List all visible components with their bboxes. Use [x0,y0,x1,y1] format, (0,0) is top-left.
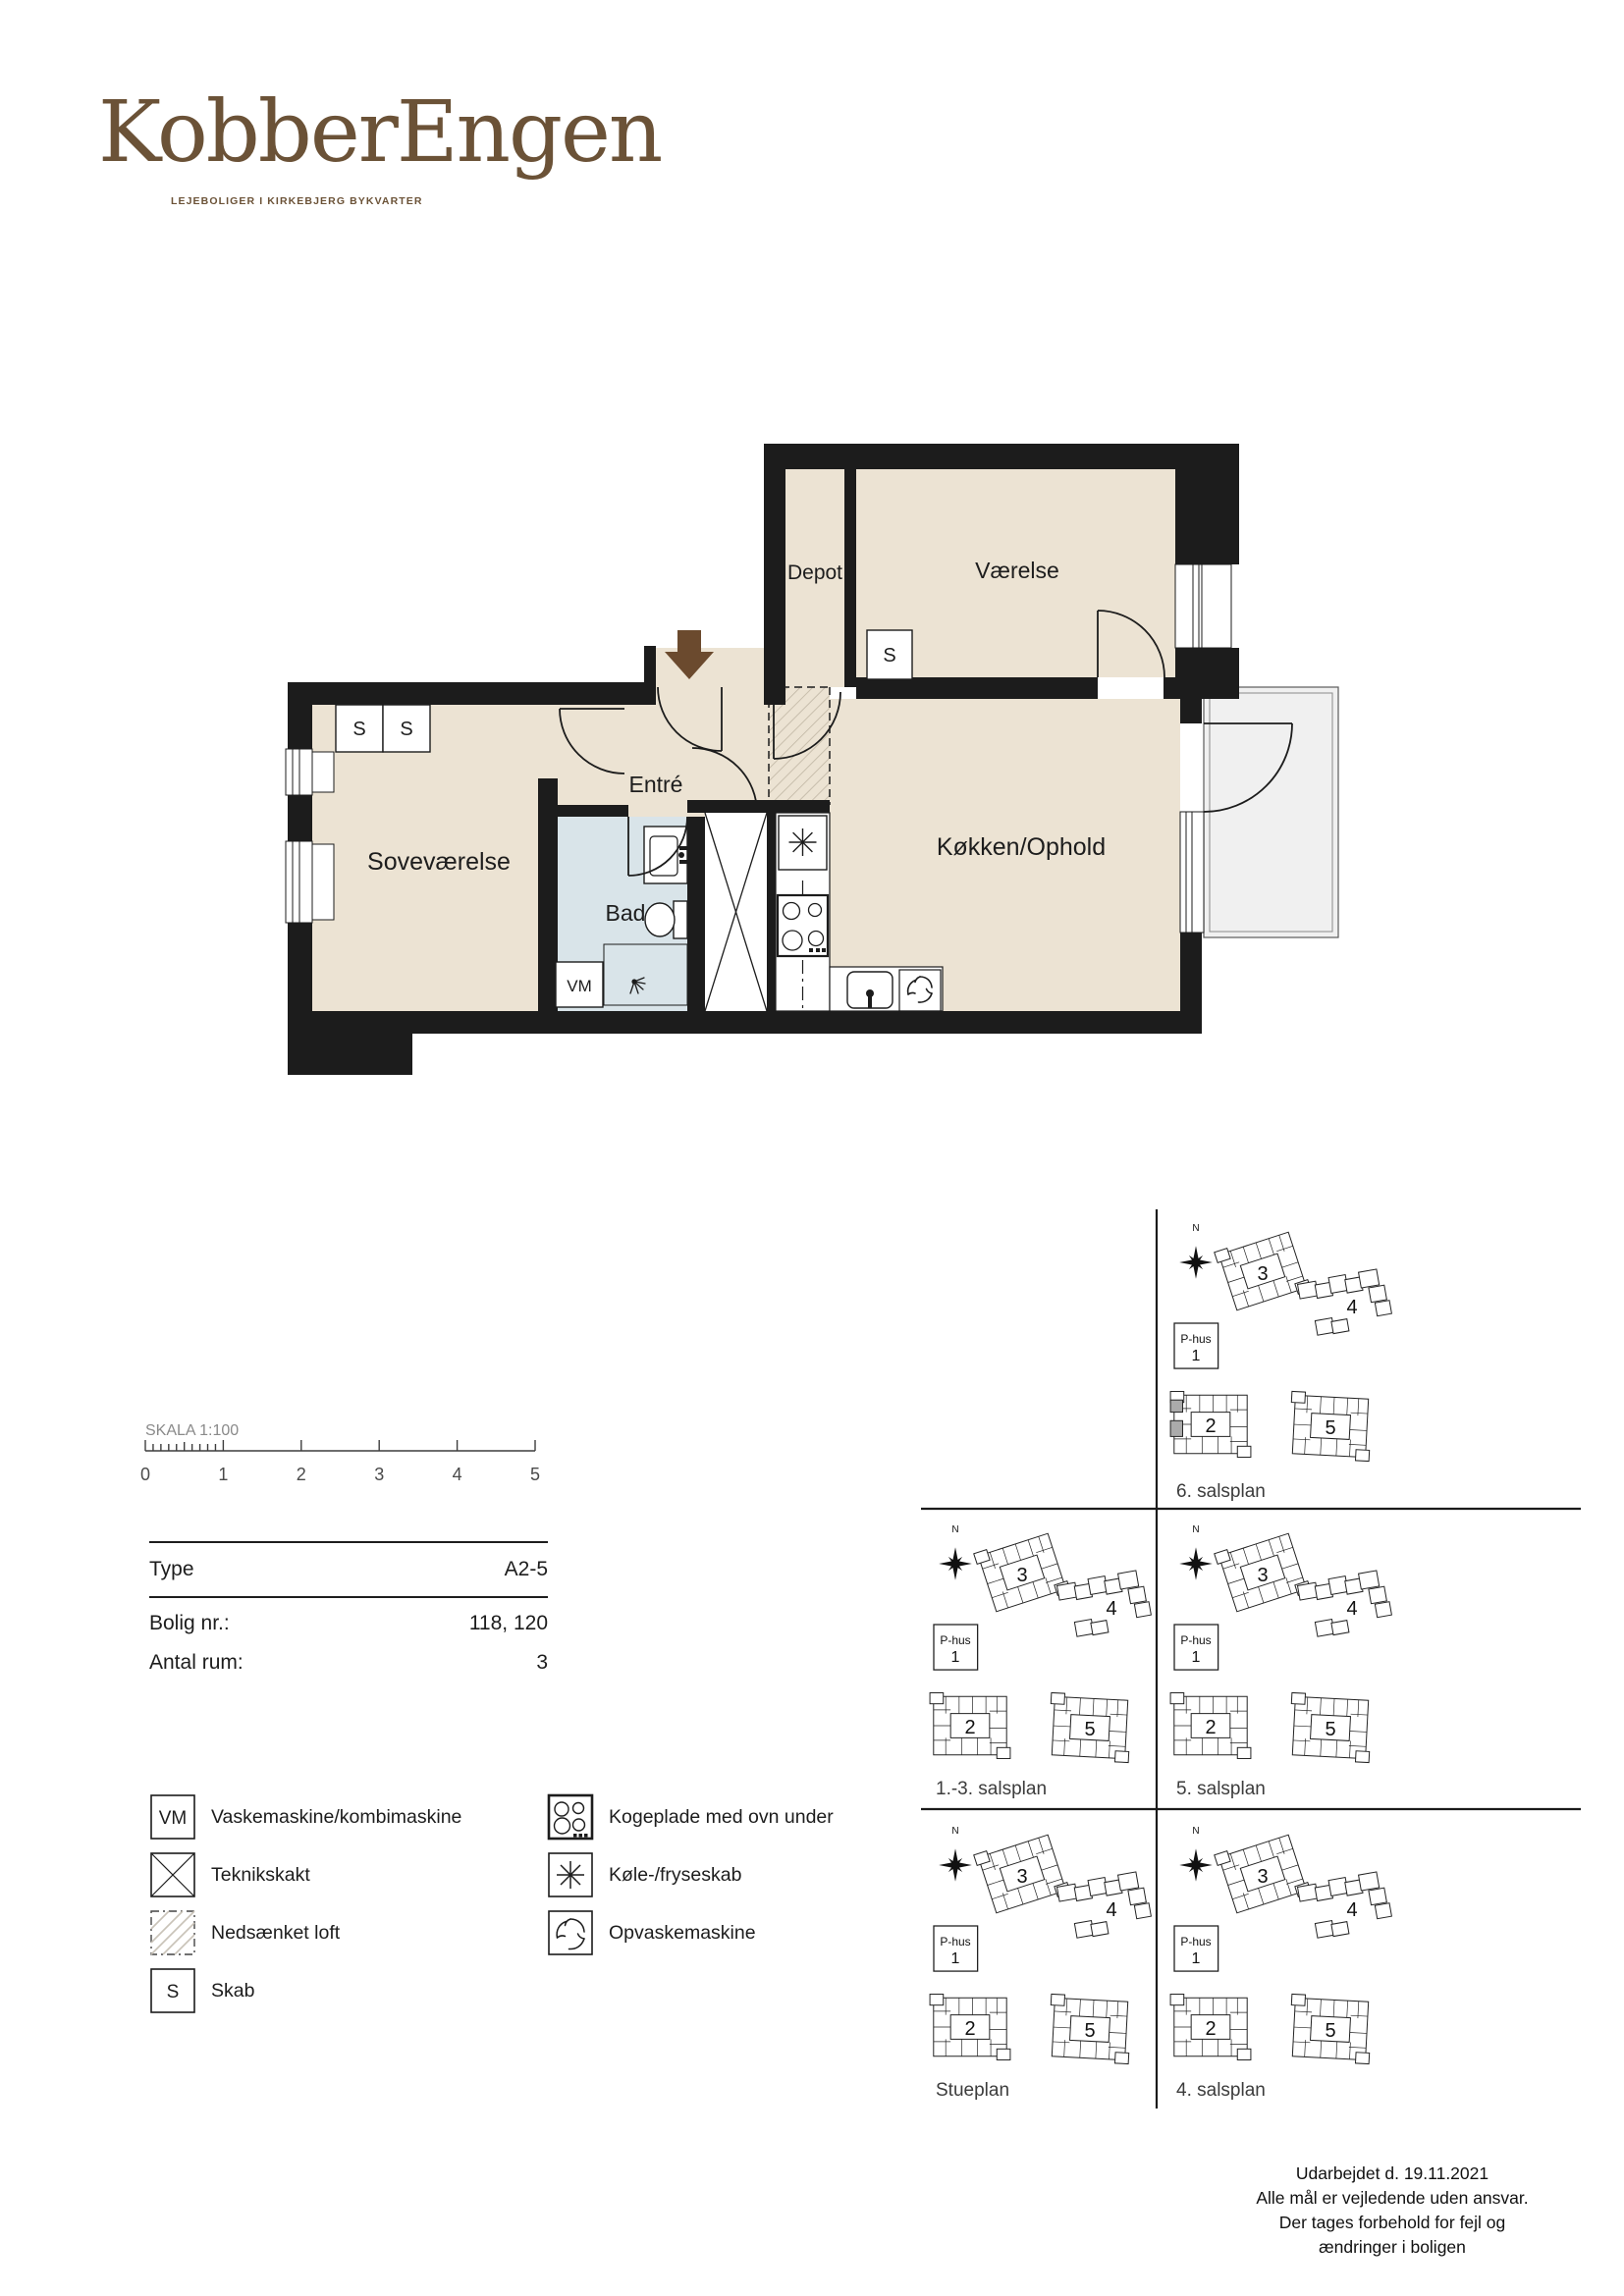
legend-item: Køle-/fryseskab [547,1851,834,1898]
p-hus-label: P-hus [940,1633,970,1647]
building-2-label: 2 [1205,1717,1216,1738]
building-4-label: 4 [1346,1598,1357,1620]
room-label-entre: Entré [629,772,683,797]
p-hus-label: P-hus [1180,1935,1211,1949]
siteplan-cell: N34P-hus1255. salsplan [1170,1524,1393,1799]
building-5-label: 5 [1084,2020,1095,2042]
floorplan-drawing: VM S S S [275,412,1355,1099]
legend-left-column: VMVaskemaskine/kombimaskineTeknikskaktNe… [149,1793,461,2025]
room-label-bad: Bad [606,900,646,926]
hob-icon [778,895,828,956]
footer-line: Udarbejdet d. 19.11.2021 [1208,2162,1577,2186]
siteplan-name: 4. salsplan [1176,2080,1266,2101]
building-1-label: 1 [951,1950,960,1967]
building-2-label: 2 [964,2018,975,2040]
legend-label: Teknikskakt [211,1864,310,1887]
building-2-label: 2 [1205,2018,1216,2040]
footer-line: Alle mål er vejledende uden ansvar. [1208,2186,1577,2211]
floorplan-sheet: KobberEngen LEJEBOLIGER I KIRKEBJERG BYK… [0,0,1624,2296]
room-label-depot: Depot [787,561,842,584]
building-4-label: 4 [1106,1598,1116,1620]
info-label: Type [149,1543,194,1596]
bath-sink-icon [644,827,687,883]
legend-item: Kogeplade med ovn under [547,1793,834,1841]
compass-north-label: N [1192,1524,1199,1535]
scale-bar: SKALA 1:100012345 [137,1412,560,1495]
siteplan-cell: N34P-hus1251.-3. salsplan [930,1524,1153,1799]
footer-line: Der tages forbehold for fejl og [1208,2211,1577,2235]
scale-tick-label: 0 [140,1465,150,1484]
compass-north-label: N [951,1524,958,1535]
siteplan-name: 5. salsplan [1176,1779,1266,1799]
scale-tick-label: 5 [530,1465,540,1484]
footer-disclaimer: Udarbejdet d. 19.11.2021Alle mål er vejl… [1208,2162,1577,2260]
siteplan-name: 1.-3. salsplan [936,1779,1047,1799]
legend-item: Nedsænket loft [149,1909,461,1956]
legend-label: Nedsænket loft [211,1922,340,1945]
building-3-label: 3 [1257,1866,1268,1888]
svg-text:S: S [167,1982,180,2002]
svg-text:VM: VM [159,1808,188,1829]
closet-label: S [400,719,412,740]
closet-label: S [352,719,365,740]
shaft-symbol-icon [149,1851,196,1898]
fridge-symbol-icon [547,1851,594,1898]
brand-tagline: LEJEBOLIGER I KIRKEBJERG BYKVARTER [171,195,423,207]
legend-item: SSkab [149,1967,461,2014]
closet-symbol-icon: S [149,1967,196,2014]
washing-machine-box: VM [556,962,603,1007]
legend-item: Opvaskemaskine [547,1909,834,1956]
building-1-label: 1 [1192,1950,1201,1967]
building-3-label: 3 [1016,1565,1027,1586]
building-3-label: 3 [1016,1866,1027,1888]
info-value: A2-5 [505,1543,548,1596]
scale-tick-label: 4 [453,1465,462,1484]
siteplan-cell: N34P-hus125Stueplan [930,1826,1153,2101]
vm-symbol-icon: VM [149,1793,196,1841]
info-label: Antal rum: [149,1643,244,1682]
room-label-vaerelse: Værelse [975,558,1059,583]
siteplan-name: 6. salsplan [1176,1481,1266,1502]
building-4-label: 4 [1346,1297,1357,1318]
building-5-label: 5 [1325,1417,1335,1439]
p-hus-label: P-hus [1180,1633,1211,1647]
legend-label: Kogeplade med ovn under [609,1806,834,1829]
building-1-label: 1 [1192,1649,1201,1666]
room-label-sovevaerelse: Soveværelse [367,848,511,876]
info-value: 3 [536,1643,548,1682]
closet-label: S [883,645,895,667]
building-1-label: 1 [1192,1348,1201,1364]
legend-item: Teknikskakt [149,1851,461,1898]
compass-north-label: N [1192,1826,1199,1837]
legend-label: Vaskemaskine/kombimaskine [211,1806,461,1829]
building-3-label: 3 [1257,1565,1268,1586]
dishwasher-symbol-icon [547,1909,594,1956]
info-label: Bolig nr.: [149,1604,230,1643]
building-4-label: 4 [1346,1899,1357,1921]
technical-shaft [705,813,767,1011]
kitchen-sink-icon [847,972,893,1008]
scale-tick-label: 1 [218,1465,228,1484]
legend-label: Køle-/fryseskab [609,1864,741,1887]
siteplan-overview: N34P-hus1256. salsplanN34P-hus1251.-3. s… [913,1202,1600,2125]
balcony [1204,687,1338,937]
building-5-label: 5 [1325,1719,1335,1740]
scale-tick-label: 3 [374,1465,384,1484]
info-table: TypeA2-5Bolig nr.:118, 120Antal rum:3 [149,1541,548,1682]
info-row: TypeA2-5 [149,1541,548,1598]
shower-tray [604,944,687,1005]
brand-logo: KobberEngen [98,90,661,175]
scale-title: SKALA 1:100 [145,1422,239,1439]
building-1-label: 1 [951,1649,960,1666]
ceiling-symbol-icon [149,1909,196,1956]
scale-tick-label: 2 [297,1465,306,1484]
room-label-koekken: Køkken/Ophold [937,833,1106,861]
compass-north-label: N [951,1826,958,1837]
compass-north-label: N [1192,1223,1199,1234]
highlighted-unit [1170,1420,1182,1436]
building-5-label: 5 [1084,1719,1095,1740]
legend-label: Opvaskemaskine [609,1922,756,1945]
p-hus-label: P-hus [940,1935,970,1949]
highlighted-unit [1170,1400,1182,1412]
building-3-label: 3 [1257,1263,1268,1285]
legend-item: VMVaskemaskine/kombimaskine [149,1793,461,1841]
siteplan-cell: N34P-hus1254. salsplan [1170,1826,1393,2101]
building-5-label: 5 [1325,2020,1335,2042]
siteplan-name: Stueplan [936,2080,1009,2101]
siteplan-grid-lines [921,1209,1581,2109]
info-row: Antal rum:3 [149,1643,548,1682]
legend-right-column: Kogeplade med ovn underKøle-/fryseskabOp… [547,1793,834,1967]
washing-machine-label: VM [567,977,592,995]
building-2-label: 2 [964,1717,975,1738]
legend-label: Skab [211,1980,254,2002]
building-4-label: 4 [1106,1899,1116,1921]
footer-line: ændringer i boligen [1208,2235,1577,2260]
info-row: Bolig nr.:118, 120 [149,1604,548,1643]
building-2-label: 2 [1205,1415,1216,1437]
siteplan-cell: N34P-hus1256. salsplan [1170,1223,1393,1502]
toilet-icon [645,901,687,938]
hob-symbol-icon [547,1793,594,1841]
fridge-freezer-icon [779,816,827,870]
info-value: 118, 120 [469,1604,548,1643]
p-hus-label: P-hus [1180,1332,1211,1346]
